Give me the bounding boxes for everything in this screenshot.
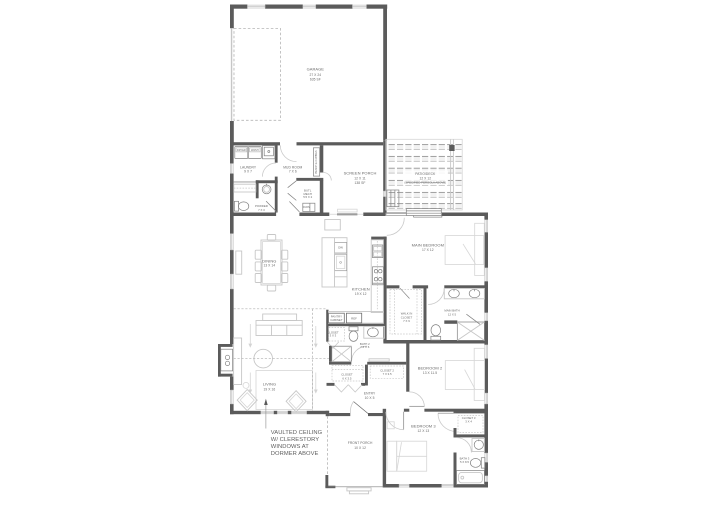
svg-text:5.5 X 2: 5.5 X 2: [303, 195, 312, 199]
svg-text:WINDOWS AT: WINDOWS AT: [271, 444, 309, 450]
svg-text:VAULTED CEILING: VAULTED CEILING: [271, 430, 323, 436]
svg-text:WASH: WASH: [251, 148, 259, 152]
svg-text:BENCH & CUBBIES: BENCH & CUBBIES: [314, 150, 318, 174]
svg-text:W/ CLERESTORY: W/ CLERESTORY: [271, 437, 320, 443]
svg-text:3 X 3: 3 X 3: [330, 334, 337, 338]
svg-text:MUD ROOM: MUD ROOM: [283, 165, 302, 169]
svg-text:7 X 6: 7 X 6: [289, 170, 297, 174]
svg-text:7 X 3.5: 7 X 3.5: [383, 372, 392, 376]
svg-text:9 X 7: 9 X 7: [244, 170, 252, 174]
svg-text:DRYER: DRYER: [237, 148, 246, 152]
svg-text:GARAGE: GARAGE: [307, 67, 325, 72]
svg-text:7 X 3: 7 X 3: [258, 208, 265, 212]
svg-text:138 SF: 138 SF: [355, 181, 366, 185]
svg-text:6 X 3.5: 6 X 3.5: [342, 376, 351, 380]
svg-text:ENTRY: ENTRY: [364, 391, 376, 395]
svg-text:DW: DW: [338, 245, 343, 249]
svg-text:BEDROOM 3: BEDROOM 3: [411, 423, 436, 428]
svg-text:LIVING: LIVING: [263, 382, 276, 387]
svg-text:REF: REF: [351, 316, 357, 320]
svg-text:10 X 12: 10 X 12: [354, 446, 366, 450]
svg-text:12 X 5: 12 X 5: [448, 312, 457, 316]
svg-text:13 X 11.5: 13 X 11.5: [423, 371, 437, 375]
svg-text:FURN: FURN: [303, 205, 310, 209]
svg-text:FRONT PORCH: FRONT PORCH: [348, 441, 373, 445]
svg-text:PATIO/DECK: PATIO/DECK: [415, 172, 436, 176]
svg-text:19 X 16: 19 X 16: [264, 387, 276, 391]
svg-text:12 X 11: 12 X 11: [354, 176, 366, 180]
svg-text:MAIN BEDROOM: MAIN BEDROOM: [412, 242, 444, 247]
svg-text:12 X 13: 12 X 13: [418, 429, 430, 433]
svg-text:17 X 12: 17 X 12: [422, 248, 434, 252]
svg-text:BEDROOM 2: BEDROOM 2: [418, 365, 443, 370]
svg-text:3 X 4: 3 X 4: [465, 419, 472, 423]
svg-text:KITCHEN: KITCHEN: [352, 286, 370, 291]
svg-text:19 X 12: 19 X 12: [355, 292, 367, 296]
svg-text:10 X 5: 10 X 5: [365, 396, 375, 400]
svg-text:LAUNDRY: LAUNDRY: [240, 165, 257, 169]
svg-text:DORMER ABOVE: DORMER ABOVE: [271, 451, 319, 457]
svg-text:7 X 9: 7 X 9: [403, 319, 410, 323]
svg-text:635 SF: 635 SF: [310, 77, 321, 81]
svg-text:5 X 8.5: 5 X 8.5: [460, 460, 469, 464]
svg-text:27 X 24: 27 X 24: [309, 73, 321, 77]
svg-text:13 X 14: 13 X 14: [263, 264, 275, 268]
svg-text:CABINET: CABINET: [330, 318, 343, 322]
svg-text:SCREEN PORCH: SCREEN PORCH: [344, 171, 377, 176]
svg-text:7.5 X 6: 7.5 X 6: [360, 345, 369, 349]
